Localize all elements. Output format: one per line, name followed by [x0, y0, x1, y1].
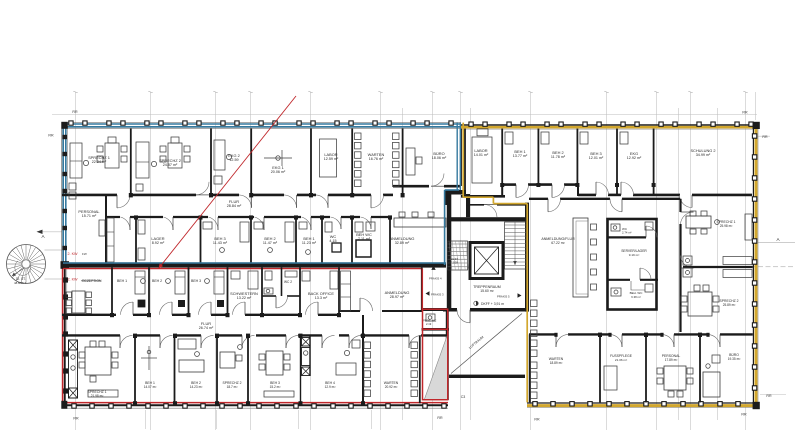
svg-text:C3: C3 [461, 395, 466, 399]
svg-text:BEH 3: BEH 3 [191, 279, 201, 283]
svg-text:14.07 m²: 14.07 m² [144, 385, 157, 389]
svg-text:26.74 m²: 26.74 m² [199, 326, 214, 330]
svg-text:RR: RR [72, 110, 78, 114]
svg-text:21 ST: 21 ST [451, 257, 458, 261]
svg-text:21.98 m²: 21.98 m² [91, 394, 104, 398]
svg-text:28.97 m²: 28.97 m² [390, 295, 405, 299]
svg-text:6.38 m²: 6.38 m² [631, 295, 641, 299]
svg-text:15.2 m²: 15.2 m² [270, 385, 281, 389]
svg-text:13.3 m²: 13.3 m² [315, 296, 328, 300]
svg-text:12.59 m²: 12.59 m² [324, 157, 339, 161]
svg-text:FW: FW [82, 252, 87, 256]
svg-text:2.74 m²: 2.74 m² [622, 231, 632, 235]
svg-text:PRAXIS 4: PRAXIS 4 [429, 277, 442, 281]
svg-text:13.77 m²: 13.77 m² [513, 154, 528, 158]
svg-text:11.47 m²: 11.47 m² [263, 241, 278, 245]
svg-text:8.92 m²: 8.92 m² [152, 241, 165, 245]
svg-text:RR: RR [741, 413, 747, 417]
svg-text:12.59: 12.59 [229, 158, 238, 162]
svg-text:15.71 m²: 15.71 m² [82, 214, 97, 218]
svg-text:RR: RR [48, 134, 54, 138]
svg-text:12.9 m²: 12.9 m² [325, 385, 336, 389]
svg-text:13.22 m²: 13.22 m² [237, 296, 252, 300]
svg-text:28.84 m²: 28.84 m² [227, 204, 242, 208]
svg-text:PRAXIS 5: PRAXIS 5 [497, 295, 510, 299]
svg-text:12.01 m²: 12.01 m² [589, 156, 604, 160]
svg-text:34.99 m²: 34.99 m² [696, 153, 711, 157]
svg-text:11.78 m²: 11.78 m² [551, 155, 566, 159]
svg-text:RR: RR [762, 135, 768, 139]
svg-text:4.15: 4.15 [329, 239, 336, 243]
svg-text:17.2/28: 17.2/28 [449, 261, 458, 265]
svg-text:RR: RR [437, 416, 443, 420]
svg-text:67.22 m²: 67.22 m² [551, 241, 565, 245]
svg-text:9.19 m²: 9.19 m² [629, 253, 640, 257]
svg-text:RR: RR [742, 111, 748, 115]
svg-text:12.92 m²: 12.92 m² [627, 156, 642, 160]
svg-text:25.98 m²: 25.98 m² [720, 224, 733, 228]
svg-text:2. KW: 2. KW [68, 252, 79, 256]
svg-text:21.06 m²: 21.06 m² [615, 358, 627, 362]
svg-text:2.19: 2.19 [426, 322, 432, 326]
svg-text:19.35 m²: 19.35 m² [728, 357, 741, 361]
svg-text:14.23 m²: 14.23 m² [190, 385, 203, 389]
svg-text:22.24 m²: 22.24 m² [92, 160, 107, 164]
svg-text:25.89 m²: 25.89 m² [723, 303, 736, 307]
svg-text:WC 2: WC 2 [284, 280, 292, 284]
svg-text:RR: RR [534, 418, 540, 422]
svg-text:BEH 1: BEH 1 [117, 279, 127, 283]
svg-text:7.11 m²: 7.11 m² [358, 237, 371, 241]
svg-text:20.92 m²: 20.92 m² [385, 385, 398, 389]
svg-text:18.89 m²: 18.89 m² [550, 361, 563, 365]
svg-text:DKFF + 3,91 m: DKFF + 3,91 m [481, 302, 504, 306]
svg-text:48.6/26.7: 48.6/26.7 [14, 281, 26, 285]
svg-text:24.87 m²: 24.87 m² [163, 163, 178, 167]
svg-text:20.06 m²: 20.06 m² [271, 170, 286, 174]
svg-text:BEH 2: BEH 2 [152, 279, 162, 283]
svg-text:18.7 m²: 18.7 m² [227, 385, 238, 389]
svg-text:2. KW: 2. KW [68, 278, 79, 282]
svg-text:11.23 m²: 11.23 m² [302, 241, 317, 245]
svg-text:RR: RR [73, 417, 79, 421]
svg-text:14.01 m²: 14.01 m² [474, 153, 489, 157]
svg-text:32.89 m²: 32.89 m² [395, 241, 410, 245]
svg-text:11.43 m²: 11.43 m² [213, 241, 228, 245]
svg-text:18.06 m²: 18.06 m² [432, 156, 447, 160]
svg-text:15.60 m²: 15.60 m² [480, 289, 494, 293]
svg-text:17.89 m²: 17.89 m² [665, 358, 678, 362]
svg-text:PERS. WC: PERS. WC [423, 319, 436, 323]
svg-text:PRAXIS 3: PRAXIS 3 [431, 293, 444, 297]
svg-text:RR: RR [766, 394, 772, 398]
svg-text:16.76 m²: 16.76 m² [369, 157, 384, 161]
